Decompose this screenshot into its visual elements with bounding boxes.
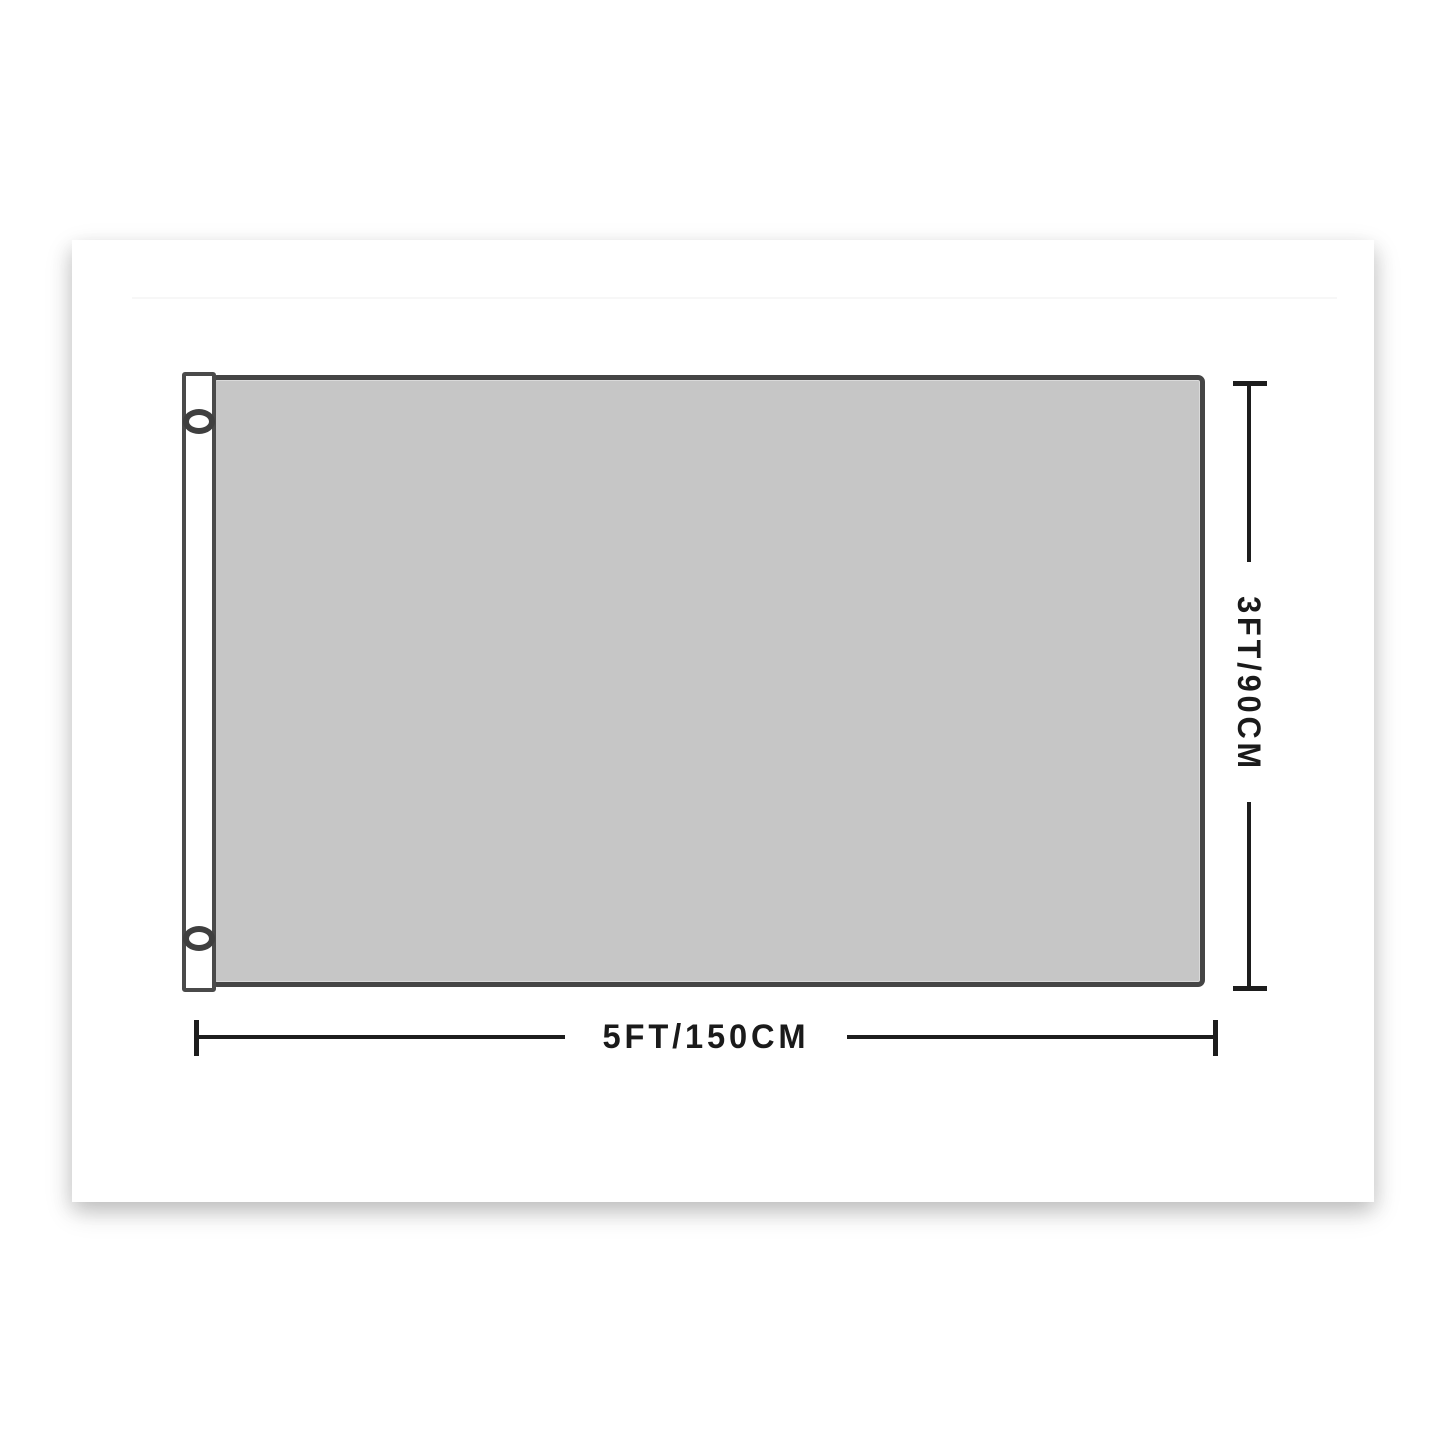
flag-body	[210, 375, 1205, 987]
width-dimension-label: 5FT/150CM	[533, 1017, 879, 1057]
pole-sleeve	[182, 372, 216, 992]
grommet-top-icon	[183, 409, 215, 434]
card-top-divider	[132, 297, 1337, 299]
height-dimension-upper-line	[1247, 384, 1251, 562]
height-dimension-bottom-tick	[1233, 986, 1267, 991]
width-dimension-right-tick	[1213, 1020, 1218, 1056]
width-dimension-right-line	[847, 1035, 1216, 1039]
height-dimension-lower-line	[1247, 802, 1251, 988]
height-dimension-label: 3FT/90CM	[1229, 588, 1269, 780]
grommet-bottom-icon	[183, 926, 215, 951]
width-dimension-left-line	[196, 1035, 565, 1039]
product-image-card: 3FT/90CM 5FT/150CM	[72, 240, 1374, 1202]
page-background: 3FT/90CM 5FT/150CM	[0, 0, 1445, 1445]
